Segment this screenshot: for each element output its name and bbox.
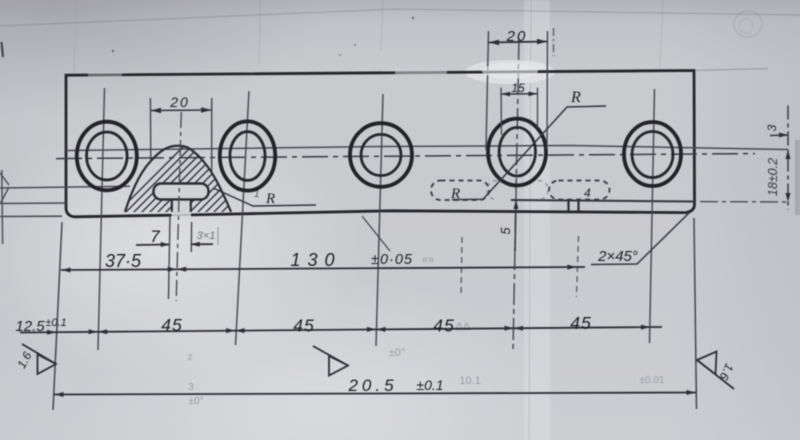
- svg-text:2×45°: 2×45°: [597, 248, 638, 265]
- svg-text:3: 3: [765, 124, 779, 131]
- svg-text:3×1: 3×1: [197, 230, 216, 242]
- svg-text:±0°: ±0°: [389, 347, 406, 359]
- svg-text:45: 45: [293, 316, 314, 336]
- svg-text:20: 20: [169, 94, 190, 110]
- svg-text:z: z: [188, 352, 193, 363]
- svg-text:ΔΔ: ΔΔ: [456, 321, 471, 333]
- svg-text:3: 3: [188, 382, 194, 393]
- svg-text:±0.1: ±0.1: [416, 377, 443, 393]
- svg-text:±0°: ±0°: [188, 396, 203, 407]
- svg-text:4: 4: [584, 186, 591, 200]
- svg-text:1.6: 1.6: [14, 349, 34, 371]
- svg-text:37·5: 37·5: [105, 251, 142, 271]
- svg-text:R: R: [450, 186, 460, 202]
- svg-text:12.5: 12.5: [15, 318, 45, 335]
- svg-text:5: 5: [498, 227, 513, 235]
- svg-text:15: 15: [511, 81, 525, 95]
- svg-text:130: 130: [290, 250, 341, 270]
- svg-text:R: R: [265, 191, 275, 207]
- svg-text:«»: «»: [422, 254, 434, 266]
- svg-text:45: 45: [570, 313, 591, 333]
- svg-text:18±0.2: 18±0.2: [766, 158, 780, 196]
- svg-text:±0.01: ±0.01: [640, 375, 665, 386]
- svg-text:20: 20: [506, 28, 528, 45]
- svg-text:1.6: 1.6: [717, 361, 737, 382]
- svg-text:±0.1: ±0.1: [45, 317, 66, 329]
- svg-text:20.5: 20.5: [347, 376, 397, 395]
- svg-text:7: 7: [150, 227, 160, 246]
- svg-text:45: 45: [161, 315, 182, 335]
- svg-text:R: R: [570, 89, 581, 106]
- svg-text:10.1: 10.1: [459, 375, 480, 387]
- svg-text:45: 45: [433, 316, 454, 336]
- svg-text:±0·05: ±0·05: [371, 252, 413, 268]
- svg-text:1: 1: [254, 189, 260, 200]
